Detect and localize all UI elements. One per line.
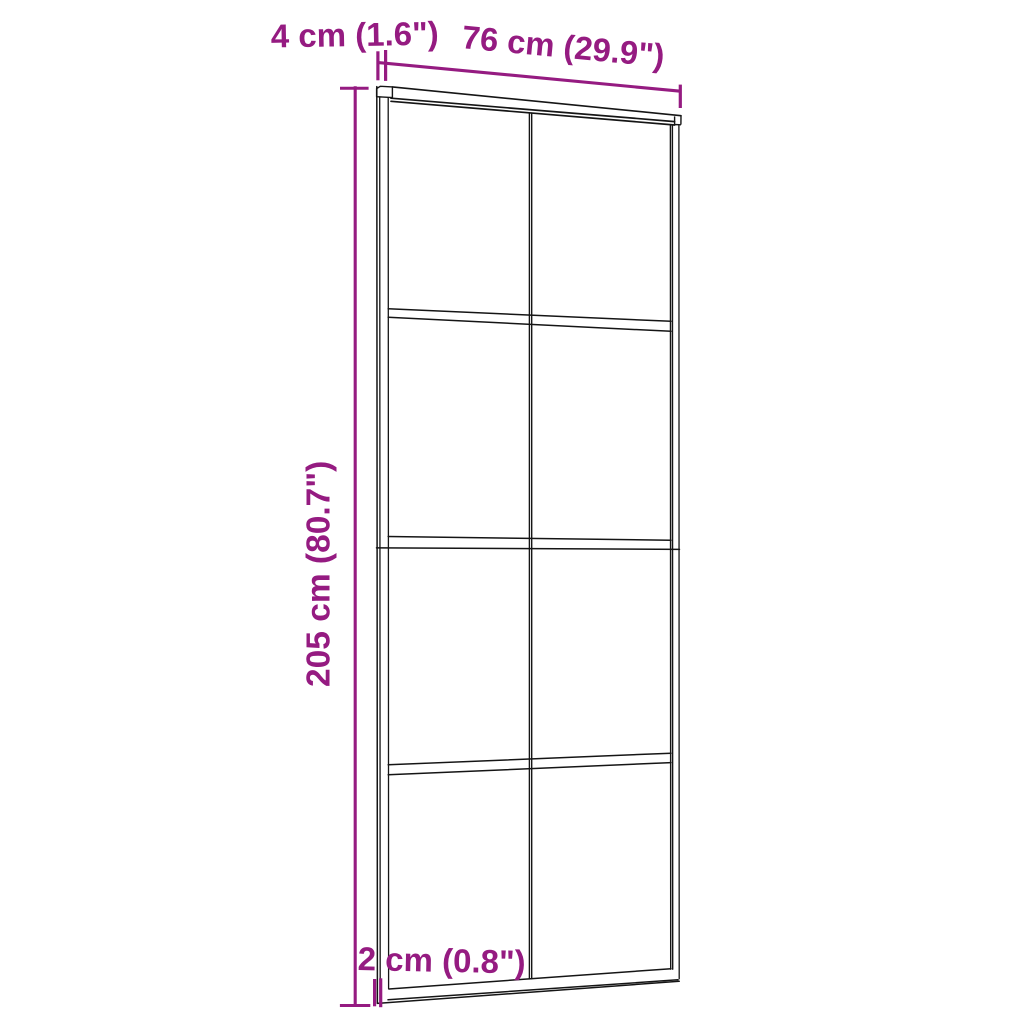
svg-text:4 cm (1.6"): 4 cm (1.6") bbox=[270, 15, 439, 55]
svg-text:205 cm (80.7"): 205 cm (80.7") bbox=[301, 461, 338, 687]
svg-text:2 cm (0.8"): 2 cm (0.8") bbox=[357, 940, 526, 981]
